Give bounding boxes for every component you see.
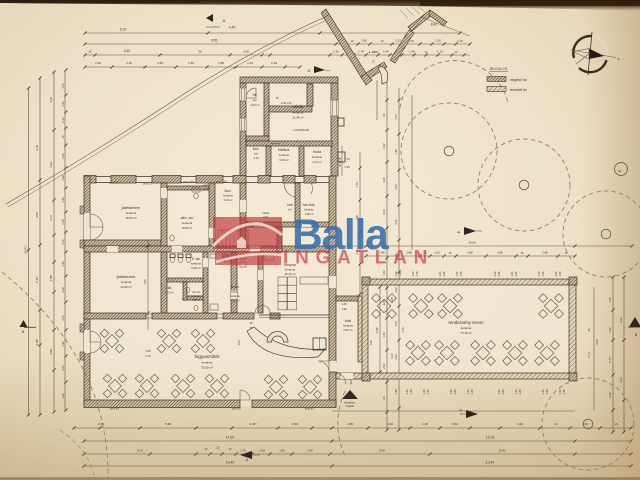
svg-text:ölt.: ölt. — [253, 93, 258, 97]
svg-text:6.06: 6.06 — [619, 317, 623, 323]
svg-text:4.58*: 4.58* — [49, 274, 53, 282]
svg-text:6.91 m²: 6.91 m² — [343, 328, 352, 332]
svg-text:1.90: 1.90 — [279, 449, 285, 453]
svg-text:10: 10 — [380, 39, 384, 43]
svg-text:közl: közl — [345, 319, 352, 323]
svg-text:4.45: 4.45 — [229, 26, 236, 30]
svg-text:hűtőkra.: hűtőkra. — [278, 148, 290, 152]
svg-text:3.93: 3.93 — [49, 162, 53, 168]
svg-text:JELKULCS: JELKULCS — [489, 67, 508, 71]
svg-text:2.88: 2.88 — [467, 251, 473, 255]
svg-text:kerámia: kerámia — [192, 295, 202, 298]
svg-text:1.38: 1.38 — [546, 389, 549, 394]
svg-text:18.03 m²: 18.03 m² — [125, 216, 136, 220]
svg-text:15: 15 — [88, 50, 92, 54]
svg-text:1.98: 1.98 — [341, 307, 347, 311]
svg-text:13.19: 13.19 — [486, 436, 495, 440]
svg-text:kerámia: kerámia — [223, 194, 233, 198]
svg-text:3.69*: 3.69* — [375, 326, 379, 333]
svg-text:meglévő fal: meglévő fal — [510, 78, 527, 82]
svg-text:3.02: 3.02 — [387, 422, 393, 426]
svg-text:75.19 m²: 75.19 m² — [460, 331, 471, 335]
svg-text:1.10: 1.10 — [608, 297, 612, 303]
svg-text:1.42: 1.42 — [382, 270, 386, 276]
svg-text:1.43: 1.43 — [538, 271, 541, 276]
svg-text:13.26: 13.26 — [468, 241, 476, 245]
svg-text:1.43: 1.43 — [450, 389, 453, 394]
svg-text:14.52: 14.52 — [226, 436, 235, 440]
svg-text:1.38: 1.38 — [399, 271, 402, 276]
svg-text:~ 2/14/NA130: ~ 2/14/NA130 — [292, 128, 310, 132]
svg-text:A: A — [246, 458, 249, 462]
svg-text:1.43: 1.43 — [439, 271, 442, 276]
svg-text:16: 16 — [615, 422, 618, 426]
svg-text:1.38: 1.38 — [498, 271, 501, 276]
svg-text:1.20: 1.20 — [435, 39, 441, 43]
svg-text:1.98: 1.98 — [344, 165, 350, 169]
svg-text:1.38: 1.38 — [542, 271, 545, 276]
svg-text:30: 30 — [410, 39, 414, 43]
svg-text:1.20: 1.20 — [333, 50, 339, 54]
svg-text:1.43: 1.43 — [494, 271, 497, 276]
svg-text:2.02: 2.02 — [382, 363, 386, 369]
svg-text:4.16 m²: 4.16 m² — [223, 198, 232, 202]
svg-text:kel: kel — [254, 152, 258, 156]
svg-text:pm± 80: pm± 80 — [110, 407, 119, 411]
svg-text:1.38: 1.38 — [416, 271, 419, 276]
svg-text:16: 16 — [555, 422, 558, 426]
svg-text:90.2: 90.2 — [350, 379, 353, 384]
svg-text:ker: ker — [253, 98, 257, 102]
svg-text:1.25: 1.25 — [341, 302, 347, 306]
svg-text:2.20: 2.20 — [608, 392, 612, 398]
svg-text:1.29: 1.29 — [271, 61, 277, 65]
svg-text:2.70: 2.70 — [145, 354, 151, 358]
svg-text:kerámia: kerámia — [230, 294, 240, 298]
svg-text:előt.: előt. — [166, 286, 172, 290]
svg-text:1.29: 1.29 — [247, 61, 253, 65]
svg-text:1.38: 1.38 — [519, 389, 522, 394]
svg-text:1.50: 1.50 — [157, 61, 163, 65]
svg-text:2.90: 2.90 — [292, 422, 298, 426]
svg-text:kerámia: kerámia — [202, 361, 213, 365]
svg-text:1.43: 1.43 — [498, 389, 501, 394]
svg-text:5.98 m²: 5.98 m² — [191, 266, 201, 270]
svg-text:kerámia: kerámia — [312, 155, 322, 159]
svg-text:1.38: 1.38 — [427, 389, 430, 394]
svg-text:kerámia: kerámia — [121, 280, 132, 284]
svg-text:1.38: 1.38 — [454, 389, 457, 394]
svg-text:1.18: 1.18 — [422, 422, 428, 426]
svg-text:1.40: 1.40 — [383, 50, 389, 54]
svg-text:női wc: női wc — [192, 290, 201, 294]
svg-text:akh. wc: akh. wc — [181, 216, 194, 220]
svg-text:2.50: 2.50 — [61, 153, 65, 159]
svg-text:kerámia: kerámia — [279, 153, 289, 157]
svg-text:3.15: 3.15 — [390, 353, 394, 359]
svg-text:2.73 m²: 2.73 m² — [164, 291, 173, 295]
svg-text:4.06: 4.06 — [35, 212, 39, 218]
svg-text:1.95: 1.95 — [145, 349, 151, 353]
svg-text:3.02: 3.02 — [517, 422, 523, 426]
svg-text:1.05: 1.05 — [237, 340, 241, 346]
svg-text:pm± 75: pm± 75 — [109, 181, 118, 185]
svg-text:2.42*: 2.42* — [249, 422, 257, 426]
svg-text:5.74: 5.74 — [587, 352, 591, 358]
svg-text:játékterem: játékterem — [116, 274, 136, 279]
svg-text:3.02*: 3.02* — [35, 338, 39, 346]
svg-text:2.28: 2.28 — [61, 393, 65, 399]
svg-text:1.43: 1.43 — [395, 271, 398, 276]
svg-text:6.06: 6.06 — [619, 377, 623, 383]
svg-text:1.10: 1.10 — [457, 39, 463, 43]
svg-text:1.38: 1.38 — [369, 340, 373, 346]
svg-text:2.12: 2.12 — [61, 117, 65, 123]
svg-text:2.02: 2.02 — [394, 354, 398, 360]
svg-text:B: B — [635, 333, 638, 337]
svg-text:2.10: 2.10 — [126, 61, 132, 65]
svg-text:30: 30 — [198, 50, 202, 54]
svg-text:rendezvény terem: rendezvény terem — [448, 320, 483, 325]
svg-text:játékterem: játékterem — [121, 205, 141, 210]
svg-text:1.43: 1.43 — [412, 271, 415, 276]
svg-text:raktár: raktár — [293, 104, 304, 109]
svg-text:mós.: mós. — [232, 290, 239, 294]
svg-text:2.02: 2.02 — [61, 365, 65, 371]
svg-text:1.40: 1.40 — [382, 177, 386, 183]
svg-text:1.38: 1.38 — [443, 271, 446, 276]
svg-text:3.46: 3.46 — [394, 219, 398, 225]
svg-text:1.38: 1.38 — [410, 389, 413, 394]
svg-text:13.42: 13.42 — [486, 461, 495, 465]
svg-text:1.43: 1.43 — [511, 271, 514, 276]
svg-text:2.02: 2.02 — [394, 287, 398, 293]
svg-text:1.50: 1.50 — [188, 61, 194, 65]
svg-text:É: É — [618, 56, 620, 61]
svg-text:3.12: 3.12 — [203, 187, 209, 191]
svg-text:kerámia: kerámia — [343, 324, 353, 328]
svg-text:5.15: 5.15 — [401, 327, 405, 333]
svg-text:1.48: 1.48 — [394, 149, 398, 155]
svg-text:E: E — [457, 230, 461, 233]
svg-text:tervezett fal: tervezett fal — [510, 88, 527, 92]
svg-text:közl.: közl. — [253, 147, 260, 151]
svg-text:1.85: 1.85 — [347, 422, 353, 426]
svg-text:kerámia: kerámia — [126, 211, 137, 215]
svg-text:fl. wc: fl. wc — [192, 257, 200, 261]
svg-text:1.50: 1.50 — [95, 61, 101, 65]
svg-text:1.38: 1.38 — [471, 389, 474, 394]
svg-text:13.42: 13.42 — [498, 449, 506, 453]
svg-text:10: 10 — [61, 135, 65, 139]
svg-text:bejárat: bejárat — [346, 404, 354, 408]
svg-text:1.40: 1.40 — [382, 332, 386, 338]
svg-text:1.43: 1.43 — [542, 389, 545, 394]
svg-text:1.20: 1.20 — [608, 327, 612, 333]
svg-text:4.15: 4.15 — [253, 156, 259, 160]
svg-text:fehér: fehér — [231, 285, 240, 289]
svg-text:1.43: 1.43 — [555, 271, 558, 276]
svg-text:E: E — [458, 408, 463, 411]
svg-text:1.98: 1.98 — [61, 175, 65, 181]
svg-text:zölds.: zölds. — [262, 211, 270, 215]
svg-text:közl.: közl. — [225, 189, 232, 193]
svg-text:15.40: 15.40 — [226, 461, 235, 465]
svg-text:hús elők.: hús elők. — [303, 203, 316, 207]
svg-text:1.05: 1.05 — [61, 315, 65, 321]
svg-text:2.02: 2.02 — [382, 143, 386, 149]
svg-text:2.07: 2.07 — [394, 114, 398, 120]
svg-text:1.95: 1.95 — [61, 341, 65, 347]
svg-text:1.43: 1.43 — [515, 389, 518, 394]
svg-text:2.05: 2.05 — [307, 449, 313, 453]
svg-text:A: A — [223, 18, 226, 23]
svg-text:4.08: 4.08 — [49, 349, 53, 355]
svg-text:1.70: 1.70 — [240, 449, 246, 453]
svg-text:75.00 m²: 75.00 m² — [201, 366, 213, 370]
svg-text:1.85: 1.85 — [218, 61, 224, 65]
svg-text:1.43: 1.43 — [456, 271, 459, 276]
svg-text:3.46 m²: 3.46 m² — [279, 158, 289, 162]
svg-text:pm± 1.65: pm± 1.65 — [183, 180, 194, 184]
svg-text:9.55: 9.55 — [211, 39, 218, 43]
svg-text:1.43: 1.43 — [423, 389, 426, 394]
svg-text:pm± 80: pm± 80 — [232, 407, 241, 411]
svg-text:közl: közl — [287, 203, 293, 207]
svg-text:2.02: 2.02 — [394, 184, 398, 190]
svg-text:akadálym.: akadálym. — [344, 401, 356, 405]
svg-text:1.60: 1.60 — [409, 50, 415, 54]
svg-text:1.05: 1.05 — [61, 83, 65, 89]
svg-text:60: 60 — [382, 113, 386, 117]
svg-text:pm± 20: pm± 20 — [143, 182, 152, 186]
svg-text:1.79: 1.79 — [358, 50, 364, 54]
svg-text:1.30: 1.30 — [61, 197, 65, 203]
svg-text:5.10: 5.10 — [120, 28, 127, 32]
svg-text:4.20: 4.20 — [124, 49, 131, 53]
svg-text:kerámia: kerámia — [191, 262, 201, 266]
svg-text:2.28: 2.28 — [390, 297, 394, 303]
svg-text:2.54 m²: 2.54 m² — [250, 103, 260, 107]
svg-text:14.60 m²: 14.60 m² — [120, 285, 131, 289]
svg-text:4.18: 4.18 — [35, 145, 39, 151]
svg-text:1.05: 1.05 — [394, 321, 398, 327]
svg-text:fogyasztótér: fogyasztótér — [194, 354, 219, 359]
svg-text:1.48: 1.48 — [394, 389, 398, 395]
svg-text:10: 10 — [350, 39, 354, 43]
svg-text:kerámia: kerámia — [304, 208, 314, 212]
svg-text:9.00: 9.00 — [379, 449, 385, 453]
svg-text:1.10: 1.10 — [437, 50, 443, 54]
svg-text:9.70: 9.70 — [137, 449, 143, 453]
svg-text:iroda: iroda — [313, 150, 321, 154]
svg-text:1.43: 1.43 — [559, 389, 562, 394]
svg-text:1.38: 1.38 — [559, 271, 562, 276]
svg-text:8.60 m²: 8.60 m² — [182, 226, 192, 230]
svg-text:2.88: 2.88 — [542, 251, 548, 255]
svg-text:5.68: 5.68 — [165, 422, 171, 426]
svg-text:1.50: 1.50 — [61, 101, 65, 107]
svg-text:eőt.: eőt. — [203, 183, 208, 187]
svg-text:1.38: 1.38 — [515, 271, 518, 276]
svg-text:1.36: 1.36 — [61, 261, 65, 267]
svg-text:2.90: 2.90 — [259, 449, 265, 453]
svg-text:3.96 m²: 3.96 m² — [230, 299, 239, 303]
svg-text:2.88: 2.88 — [497, 251, 503, 255]
svg-text:B: B — [22, 330, 25, 334]
svg-text:1.80: 1.80 — [361, 39, 367, 43]
svg-text:3.02: 3.02 — [452, 422, 458, 426]
svg-text:2.21: 2.21 — [395, 39, 401, 43]
svg-text:1.75: 1.75 — [355, 182, 359, 188]
svg-text:pm± 80: pm± 80 — [305, 407, 314, 411]
svg-text:▲ 40:33: ▲ 40:33 — [368, 50, 379, 54]
svg-text:kerámia: kerámia — [182, 221, 193, 225]
svg-text:1.38: 1.38 — [563, 389, 566, 394]
svg-text:6.06: 6.06 — [595, 339, 599, 345]
svg-text:1.43: 1.43 — [467, 389, 470, 394]
svg-text:pm± 1.65: pm± 1.65 — [216, 180, 227, 184]
svg-text:4.10: 4.10 — [49, 97, 53, 103]
svg-text:1.43: 1.43 — [406, 389, 409, 394]
svg-text:1.95: 1.95 — [143, 279, 147, 285]
svg-text:4.22 m²: 4.22 m² — [192, 299, 201, 302]
svg-text:INGATLAN: INGATLAN — [283, 248, 434, 269]
svg-text:4.10 m²: 4.10 m² — [312, 160, 322, 164]
svg-text:1.02: 1.02 — [434, 251, 440, 255]
svg-text:4.08: 4.08 — [61, 287, 65, 293]
svg-text:2.60: 2.60 — [243, 50, 249, 54]
svg-text:20.03: 20.03 — [24, 246, 28, 254]
svg-text:2.28: 2.28 — [61, 219, 65, 225]
svg-text:60: 60 — [382, 396, 386, 400]
svg-text:D: D — [308, 68, 311, 73]
svg-text:1.38: 1.38 — [502, 389, 505, 394]
svg-text:1.38: 1.38 — [460, 271, 463, 276]
svg-text:kerámia: kerámia — [293, 111, 304, 115]
svg-text:5.74: 5.74 — [608, 357, 612, 363]
svg-text:5.15: 5.15 — [35, 277, 39, 283]
svg-text:11.38 m²: 11.38 m² — [292, 116, 304, 120]
svg-text:kel: kel — [288, 208, 292, 212]
svg-text:kerámia: kerámia — [461, 326, 472, 330]
svg-text:16.30 m²: 16.30 m² — [284, 272, 295, 276]
svg-text:2.50: 2.50 — [61, 239, 65, 245]
svg-text:4.71: 4.71 — [49, 215, 53, 221]
svg-text:75: 75 — [275, 96, 279, 100]
svg-text:2.40 1.52: 2.40 1.52 — [281, 102, 292, 105]
